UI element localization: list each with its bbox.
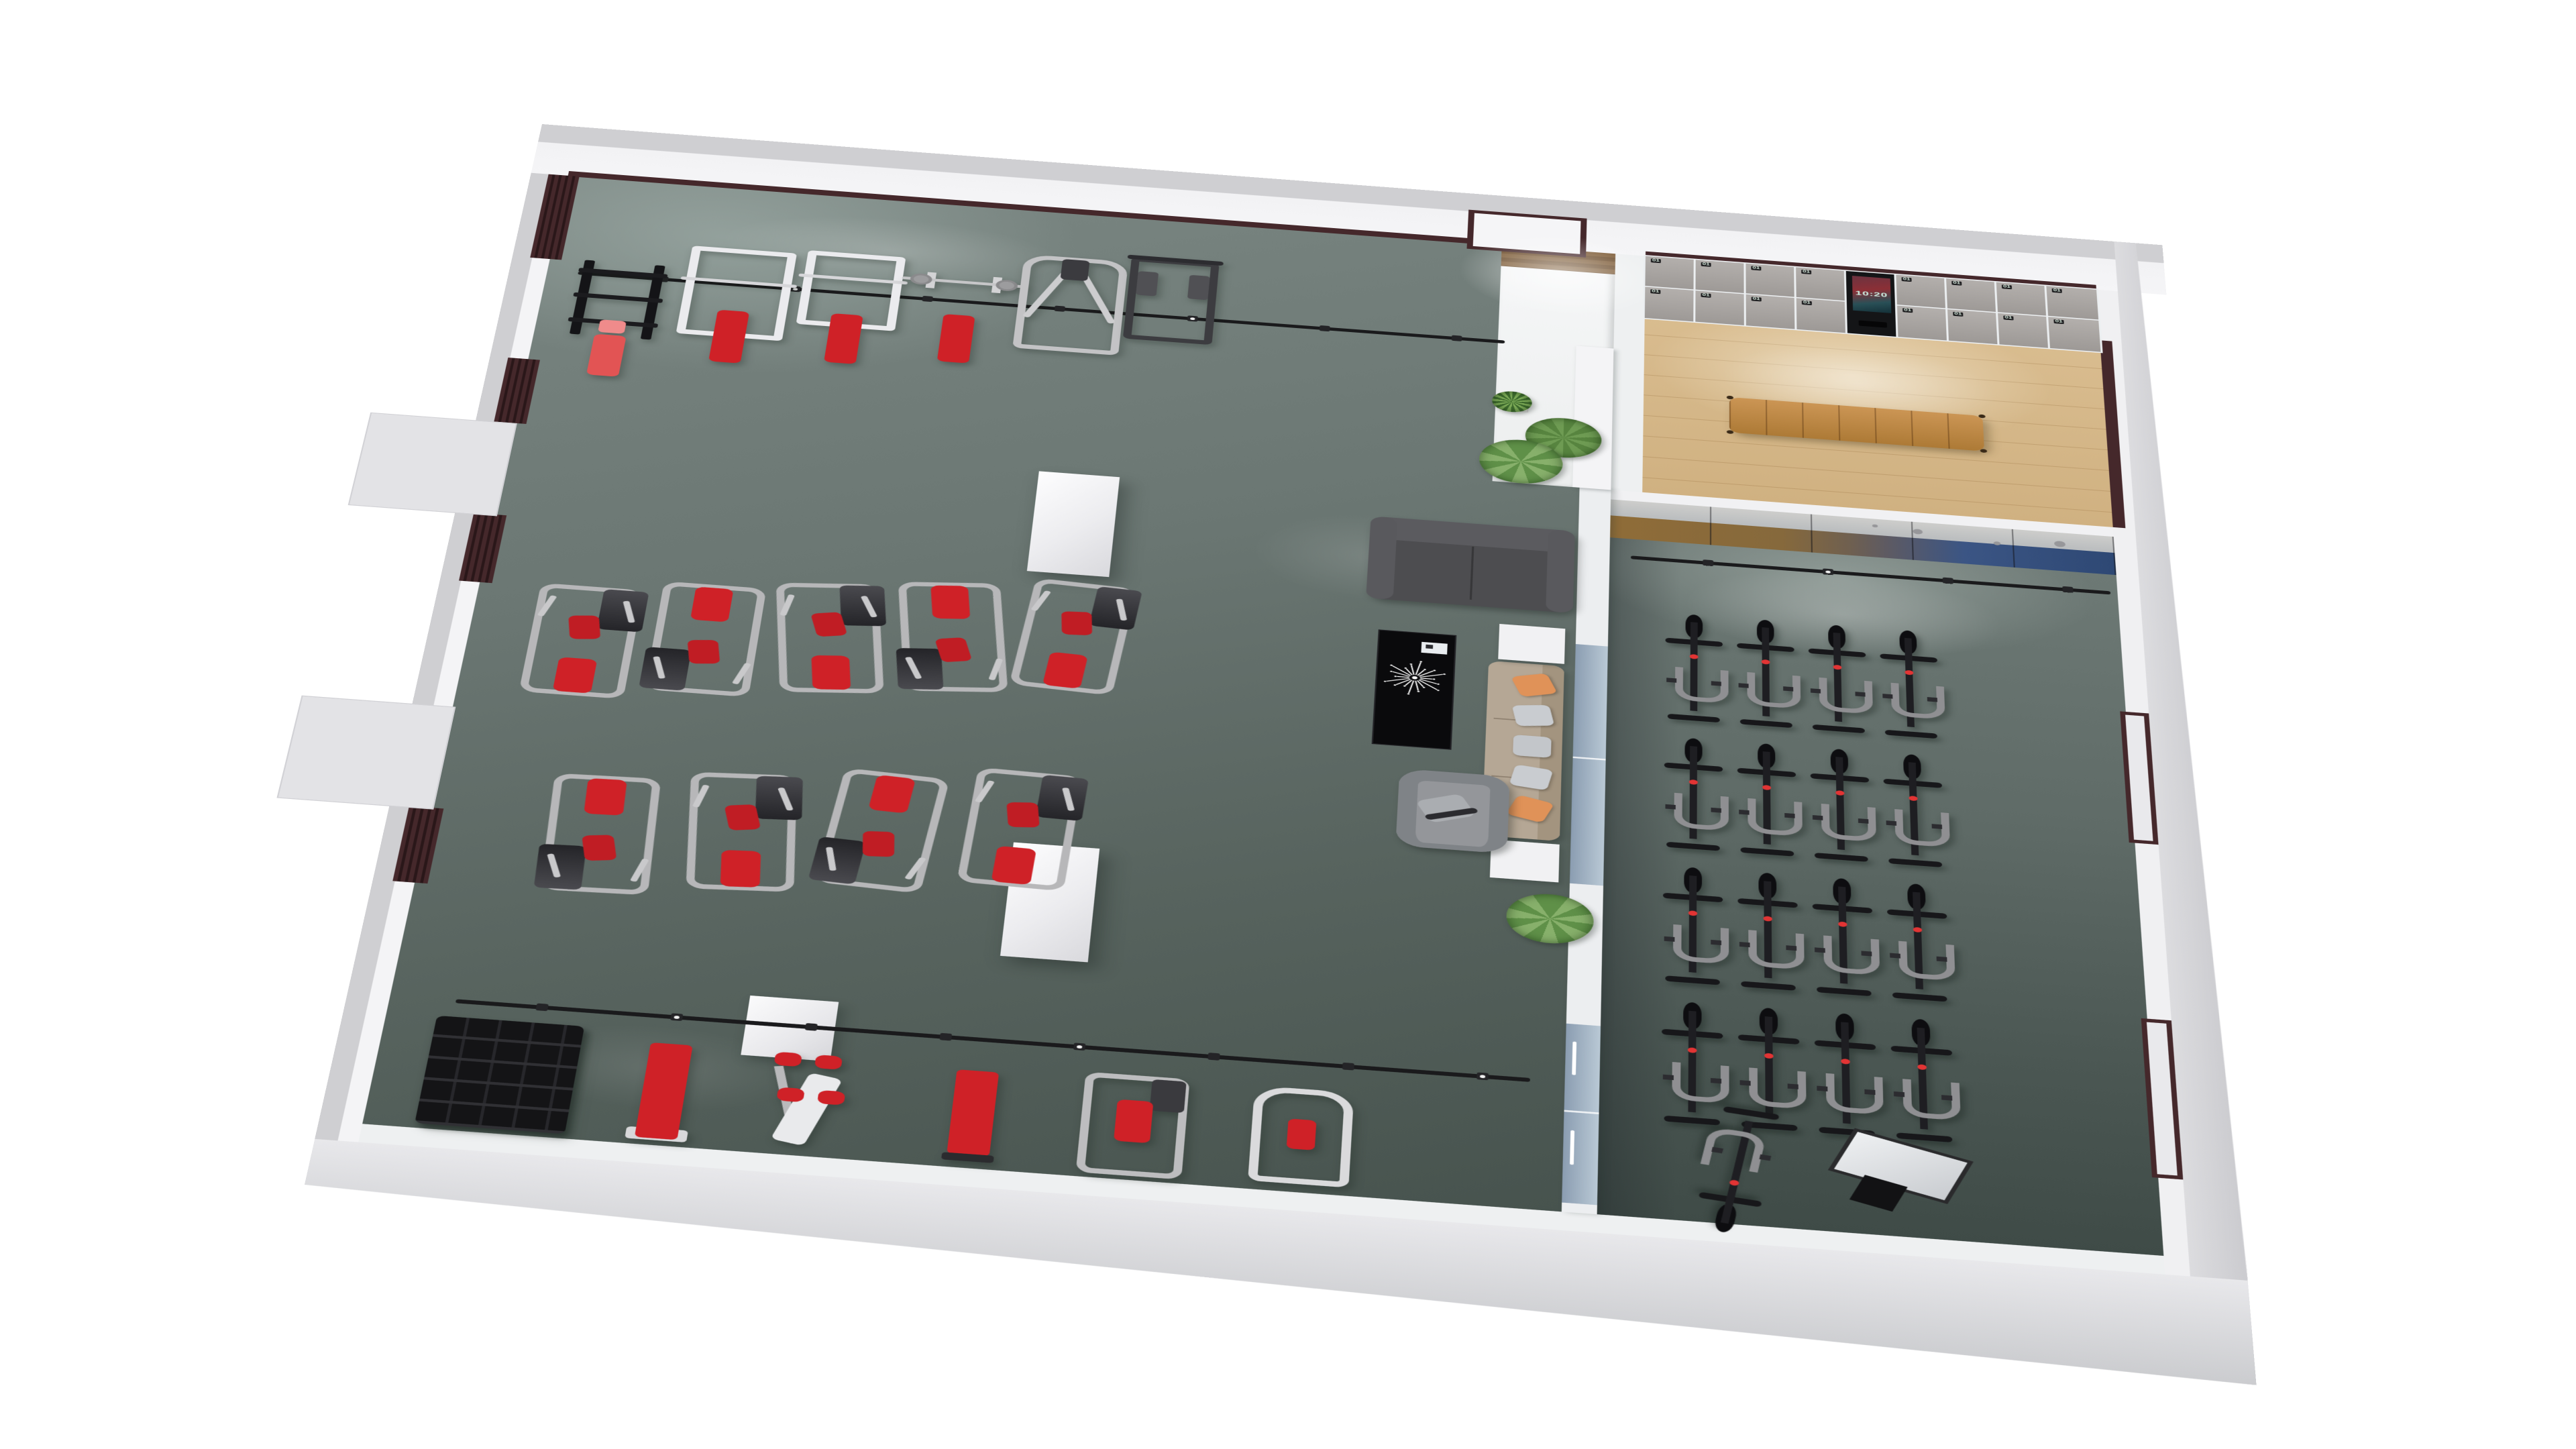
locker-number-tag: 01 [1651, 258, 1661, 263]
bike-stabilizer [1888, 858, 1942, 867]
locker-number-tag: 01 [1752, 297, 1762, 301]
seat-pad [553, 657, 598, 694]
dumbbell-rack [415, 1016, 584, 1134]
locker-number-tag: 01 [1953, 312, 1963, 317]
reflection-dot [1426, 645, 1433, 649]
spin-bike [1664, 737, 1723, 862]
entrance-vestibule [276, 696, 455, 810]
strength-machine [675, 767, 808, 897]
lounge-rug [1372, 629, 1457, 750]
bike-pedal [1663, 1075, 1674, 1080]
locker-number-tag: 01 [1701, 293, 1711, 298]
locker-door: 01 [2048, 317, 2100, 352]
bench-leg [1978, 415, 1985, 419]
track-light-fixture [670, 1013, 683, 1021]
spin-bike [1737, 618, 1795, 738]
locker-door: 01 [1746, 294, 1797, 329]
floor-plan: 010101010101010110:200101010101010101 [292, 124, 2257, 1385]
locker-door: 01 [1896, 274, 1947, 309]
locker-number-tag: 01 [1951, 281, 1962, 286]
bike-pedal [1864, 1089, 1875, 1095]
bike-pedal [1739, 810, 1749, 815]
weight-stack [1150, 1079, 1187, 1113]
power-rack [665, 246, 802, 368]
seat-pad [1287, 1118, 1317, 1150]
barbell-bench [894, 256, 1024, 367]
locker-door: 01 [1746, 264, 1796, 299]
roller-pad [776, 1087, 805, 1102]
lamp-reflection [1421, 642, 1447, 655]
bike-pedal [1927, 697, 1937, 702]
light-glint [674, 1016, 680, 1019]
bike-pedal [1937, 957, 1947, 962]
bike-pedal [1740, 1080, 1751, 1085]
light-frame-machine [1243, 1084, 1359, 1191]
seat-pad [584, 778, 627, 816]
kiosk-screen: 10:20 [1852, 276, 1891, 313]
seat-pad [991, 846, 1036, 885]
door-handle [1572, 1041, 1576, 1075]
bike-stabilizer [1723, 1106, 1779, 1120]
locker-door: 01 [2046, 286, 2098, 321]
throw-pillow [1512, 705, 1555, 726]
bike-handlebar [1701, 1126, 1767, 1173]
bike-pedal [1711, 681, 1721, 686]
half-rack [1112, 256, 1226, 377]
bike-pedal [1890, 953, 1900, 959]
squat-rack-bench [784, 250, 911, 368]
bike-pedal [1711, 1078, 1721, 1083]
bike-pedal [1862, 951, 1872, 956]
track-light-fixture [1320, 325, 1330, 331]
locker-door: 01 [1645, 287, 1696, 322]
weight-stack [896, 648, 944, 690]
light-glint [1077, 1045, 1083, 1049]
bike-pedal [1711, 808, 1721, 813]
locker-door: 01 [1695, 290, 1746, 325]
roller-pad [814, 1055, 843, 1070]
strength-machine [766, 578, 895, 698]
seat-pad [930, 586, 970, 619]
weight-stack [1089, 586, 1142, 631]
back-pad [568, 616, 600, 639]
structural-column [1026, 471, 1119, 577]
sofa [1366, 516, 1575, 613]
bike-stabilizer [1741, 847, 1794, 857]
kiosk-time: 10:20 [1856, 290, 1888, 299]
seat-pad [598, 319, 627, 334]
rack-frame [1123, 257, 1220, 345]
weight-stack [534, 844, 587, 890]
track-light-fixture [939, 1033, 952, 1041]
track-light-fixture [536, 1004, 549, 1012]
weight-stack [1136, 271, 1159, 297]
seat-pad [811, 655, 851, 690]
door-handle [1570, 1130, 1574, 1165]
bike-pedal [1882, 694, 1892, 698]
bike-pedal [1783, 686, 1793, 691]
bike-stabilizer [1741, 981, 1795, 991]
bike-pedal [1784, 813, 1794, 818]
track-light-fixture [1452, 335, 1462, 341]
spin-bike [1812, 876, 1874, 1007]
bike-stabilizer [1815, 853, 1868, 862]
entrance-vestibule [348, 413, 517, 517]
locker-number-tag: 01 [2003, 315, 2013, 320]
door-leaf [2147, 1022, 2178, 1176]
locker-number-tag: 01 [1801, 270, 1811, 274]
bike-pedal [1811, 688, 1821, 693]
bike-pedal [1941, 1095, 1952, 1100]
bike-stabilizer [1817, 987, 1871, 996]
weight-stack [1036, 775, 1089, 821]
partition-glass-panel [1570, 644, 1608, 885]
locker-door: 01 [1996, 282, 2048, 317]
strength-machine [888, 578, 1019, 696]
sofa-arm [1366, 516, 1397, 600]
studio-glass-door [1562, 1024, 1601, 1205]
seat-pad [1114, 1099, 1153, 1144]
bike-stabilizer [1813, 724, 1865, 733]
spin-bike [1814, 1012, 1878, 1148]
bike-pedal [1739, 683, 1749, 688]
spin-bike [1879, 629, 1940, 749]
roller-pad [817, 1090, 845, 1106]
locker-number-tag: 01 [2052, 288, 2062, 293]
bike-pedal [1664, 936, 1675, 942]
bike-pedal [1786, 945, 1796, 951]
glass-seam [1564, 1110, 1599, 1114]
locker-door: 01 [1998, 313, 2050, 348]
locker-door: 01 [1796, 298, 1847, 333]
track-light-fixture [805, 1023, 818, 1031]
locker-number-tag: 01 [1902, 308, 1913, 313]
bike-stabilizer [1668, 714, 1720, 722]
spin-bike [1810, 747, 1871, 873]
bike-stabilizer [1892, 992, 1947, 1002]
track-light-fixture [1823, 568, 1833, 575]
back-pad [724, 804, 761, 830]
bike-pedal [1815, 947, 1825, 953]
back-pad [1061, 611, 1092, 635]
locker-number-tag: 01 [1802, 301, 1812, 305]
bike-pedal [1932, 824, 1943, 829]
spin-bike [1883, 753, 1946, 878]
bike-pedal [1894, 1091, 1904, 1097]
bench-pad [824, 313, 863, 364]
track-light-fixture [1208, 1053, 1220, 1061]
bike-stabilizer [1665, 975, 1719, 985]
bike-stabilizer [1666, 842, 1720, 851]
track-light-fixture [1073, 1042, 1085, 1051]
bench-pad [937, 314, 975, 364]
corridor-divider-panel [1572, 345, 1613, 490]
bike-pedal [1711, 940, 1721, 945]
hot-air-balloon-icon [1872, 524, 1878, 527]
bike-pedal [1855, 692, 1865, 696]
scene: 010101010101010110:200101010101010101 [0, 0, 2576, 1449]
strength-machine [508, 578, 655, 704]
throw-pillow [1513, 735, 1552, 758]
bike-pedal [1817, 1086, 1827, 1091]
back-pad [863, 831, 895, 857]
weight-stack [839, 585, 886, 626]
track-light-fixture [1943, 578, 1953, 584]
weight-stack [755, 776, 803, 820]
strength-machine [529, 769, 672, 900]
spin-bike [1664, 612, 1723, 733]
locker-door: 01 [1645, 256, 1695, 291]
weight-stack [596, 589, 649, 632]
armchair [1395, 769, 1509, 854]
bike-pedal [1665, 804, 1675, 810]
locker-number-tag: 01 [1650, 289, 1660, 294]
back-pad [688, 640, 720, 663]
locker-door: 01 [1897, 306, 1949, 341]
weight-stack [1061, 259, 1090, 281]
bike-pedal [1759, 1155, 1771, 1161]
spin-bike [1886, 881, 1951, 1012]
bike-pedal [1788, 1083, 1799, 1089]
bike-stabilizer [1885, 730, 1937, 739]
glass-seam [1573, 757, 1606, 761]
back-pad [1006, 802, 1039, 828]
track-light-fixture [1477, 1072, 1489, 1080]
ab-bench [751, 1046, 868, 1158]
locker-door: 01 [1946, 278, 1998, 313]
kiosk-slot [1858, 320, 1886, 328]
locker-kiosk: 10:20 [1846, 271, 1898, 337]
locker-number-tag: 01 [1902, 277, 1912, 282]
weight-stack [1187, 275, 1210, 301]
track-light-fixture [1342, 1063, 1354, 1071]
bike-stabilizer [1664, 1116, 1720, 1126]
track-light-fixture [1703, 559, 1713, 566]
strength-machine [945, 762, 1094, 896]
seat-pad [720, 850, 761, 888]
light-glint [1825, 570, 1830, 573]
spin-bike [1737, 742, 1797, 867]
bike-stabilizer [1896, 1132, 1952, 1142]
bike-pedal [1813, 815, 1823, 820]
weight-stack [639, 647, 692, 691]
starburst-lamp-icon [1381, 657, 1449, 698]
locker-number-tag: 01 [2002, 284, 2012, 289]
bike-stabilizer [1740, 719, 1792, 728]
bike-pedal [1666, 678, 1676, 682]
bench-pad [586, 334, 627, 377]
bike-pedal [1858, 818, 1869, 824]
back-pad [582, 835, 616, 861]
locker-number-tag: 01 [1751, 266, 1761, 270]
door-leaf [2125, 715, 2153, 841]
side-table [1498, 624, 1565, 664]
bike-pedal [1886, 820, 1897, 826]
spin-bike [1737, 871, 1799, 1002]
locker-door: 01 [1695, 260, 1746, 294]
seat-pad [1042, 651, 1088, 689]
spin-bike [1808, 623, 1868, 743]
sofa-arm [1546, 529, 1575, 613]
cushion-seam [1470, 547, 1474, 600]
spin-bike [1661, 1000, 1723, 1137]
strength-machine [633, 577, 777, 702]
spin-bike [1662, 865, 1723, 996]
locker-number-tag: 01 [1701, 262, 1711, 267]
seat-pad [690, 586, 734, 622]
locker-door: 01 [1796, 267, 1847, 302]
locker-number-tag: 01 [2053, 319, 2064, 324]
red-pad-machine [1069, 1069, 1196, 1182]
roller-pad [774, 1052, 802, 1067]
bike-pedal [1739, 942, 1750, 947]
track-light-fixture [2062, 586, 2073, 593]
light-glint [1479, 1075, 1485, 1078]
spin-bike [1890, 1017, 1956, 1154]
locker-door: 01 [1947, 309, 1999, 344]
